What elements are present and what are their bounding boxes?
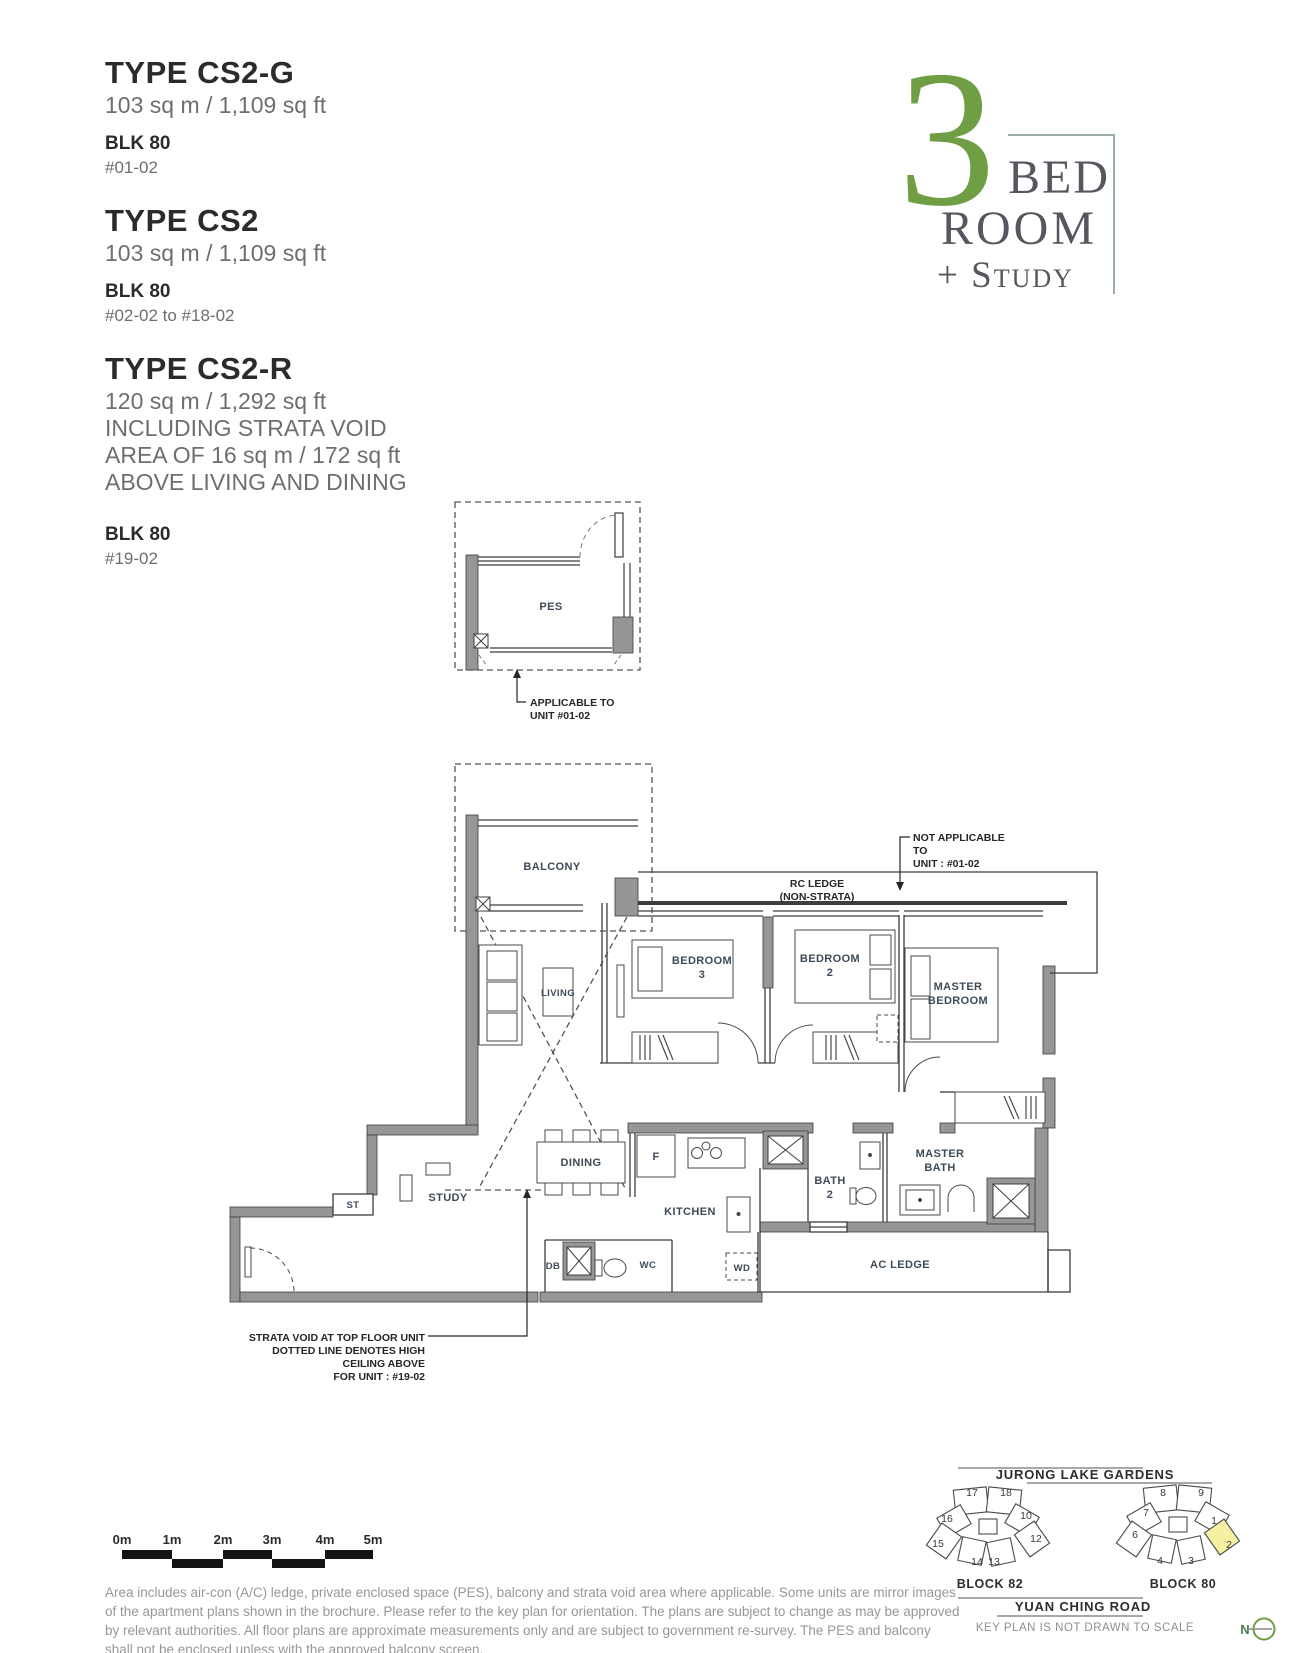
scale-label-0: 0m <box>100 1532 144 1547</box>
label-masterbath-2: BATH <box>924 1162 955 1174</box>
label-living: LIVING <box>541 988 575 999</box>
not-applicable-1: NOT APPLICABLE <box>913 832 1005 844</box>
label-wc: WC <box>640 1260 657 1271</box>
unit-type-3-title: TYPE CS2-R <box>105 351 293 387</box>
pes-room-label: PES <box>539 601 562 613</box>
road-label-top: JURONG LAKE GARDENS <box>996 1467 1174 1482</box>
disclaimer-line-4: shall not be enclosed unless with the ap… <box>105 1640 483 1653</box>
label-bedroom2-2: 2 <box>827 967 834 979</box>
unit-type-3-note-1: INCLUDING STRATA VOID <box>105 415 387 442</box>
unit-type-3-note-3: ABOVE LIVING AND DINING <box>105 469 407 496</box>
bath2-toilet <box>856 1188 876 1205</box>
svg-text:17: 17 <box>966 1487 978 1499</box>
svg-text:13: 13 <box>988 1556 1000 1568</box>
badge-accent-line-v <box>1113 134 1115 294</box>
pes-note-annotation: APPLICABLE TO UNIT #01-02 <box>513 669 614 722</box>
key-plan: JURONG LAKE GARDENS 17 18 16 10 15 12 14… <box>900 1455 1290 1650</box>
main-floorplan: BALCONY LIVING BEDROOM 3 BEDROOM 2 MASTE… <box>225 755 1115 1405</box>
scale-label-4: 4m <box>303 1532 347 1547</box>
entry-door-swing <box>250 1248 294 1292</box>
label-bath2-2: 2 <box>827 1189 834 1201</box>
pes-mini-floorplan: PES APPLICABLE TO UNIT #01-02 <box>430 470 655 735</box>
svg-text:18: 18 <box>1000 1487 1012 1499</box>
scale-label-2: 2m <box>201 1532 245 1547</box>
not-applicable-2: TO <box>913 845 927 857</box>
label-bedroom2-1: BEDROOM <box>800 953 860 965</box>
block-80-label: BLOCK 80 <box>1150 1577 1217 1591</box>
scale-label-5: 5m <box>351 1532 395 1547</box>
label-bedroom3-2: 3 <box>699 969 706 981</box>
svg-text:16: 16 <box>941 1513 953 1525</box>
pes-note-line1: APPLICABLE TO <box>530 697 614 709</box>
svg-text:12: 12 <box>1030 1533 1042 1545</box>
unit-type-1-block: BLK 80 <box>105 133 170 155</box>
key-plan-note: KEY PLAN IS NOT DRAWN TO SCALE <box>976 1622 1194 1634</box>
unit-type-3-block: BLK 80 <box>105 524 170 546</box>
compass-n-label: N <box>1240 1622 1249 1637</box>
svg-text:2: 2 <box>1226 1539 1232 1551</box>
master-toilet <box>948 1185 974 1212</box>
tv-console <box>617 965 624 1017</box>
room-labels: BALCONY LIVING BEDROOM 3 BEDROOM 2 MASTE… <box>347 861 989 1274</box>
study-desk <box>400 1175 412 1201</box>
unit-type-3-area: 120 sq m / 1,292 sq ft <box>105 388 326 415</box>
svg-text:10: 10 <box>1020 1510 1032 1522</box>
scale-label-3: 3m <box>250 1532 294 1547</box>
pes-door-swing <box>580 515 617 557</box>
disclaimer-line-1: Area includes air-con (A/C) ledge, priva… <box>105 1583 956 1602</box>
floorplan-brochure-page: TYPE CS2-G 103 sq m / 1,109 sq ft BLK 80… <box>0 0 1290 1653</box>
label-master-2: BEDROOM <box>928 995 988 1007</box>
pes-gate-swings <box>479 655 621 666</box>
pes-drain-box <box>474 634 488 648</box>
label-db: DB <box>546 1261 561 1272</box>
svg-text:3: 3 <box>1188 1555 1194 1567</box>
disclaimer-line-2: of the apartment plans shown in the broc… <box>105 1602 960 1621</box>
strata-note-3: CEILING ABOVE <box>343 1358 425 1370</box>
label-wd: WD <box>734 1263 751 1274</box>
label-st: ST <box>347 1200 360 1211</box>
svg-text:15: 15 <box>932 1538 944 1550</box>
badge-accent-line-h <box>1008 134 1115 136</box>
unit-type-2-area: 103 sq m / 1,109 sq ft <box>105 240 326 267</box>
label-master-1: MASTER <box>934 981 983 993</box>
badge-word-study: + Study <box>937 254 1074 297</box>
block-80-footprint <box>1116 1485 1239 1564</box>
svg-text:7: 7 <box>1143 1507 1149 1519</box>
road-label-bottom: YUAN CHING ROAD <box>1015 1599 1151 1614</box>
unit-type-2-block: BLK 80 <box>105 281 170 303</box>
strata-note-2: DOTTED LINE DENOTES HIGH <box>272 1345 425 1357</box>
label-study: STUDY <box>428 1192 468 1204</box>
unit-type-2-title: TYPE CS2 <box>105 203 259 239</box>
wc-toilet <box>604 1259 626 1277</box>
block-82-footprint <box>926 1487 1049 1566</box>
unit-type-3-units: #19-02 <box>105 549 158 569</box>
unit-type-1-area: 103 sq m / 1,109 sq ft <box>105 92 326 119</box>
disclaimer-line-3: by relevant authorities. All floor plans… <box>105 1621 931 1640</box>
badge-word-bed: BED <box>1008 150 1110 205</box>
label-balcony: BALCONY <box>523 861 580 873</box>
ac-unit-dashed <box>877 1015 898 1042</box>
label-bedroom3-1: BEDROOM <box>672 955 732 967</box>
label-bath2-1: BATH <box>814 1175 845 1187</box>
block-82-label: BLOCK 82 <box>957 1577 1024 1591</box>
label-masterbath-1: MASTER <box>916 1148 965 1160</box>
svg-text:6: 6 <box>1132 1529 1138 1541</box>
label-ac-ledge: AC LEDGE <box>870 1259 930 1271</box>
svg-text:9: 9 <box>1198 1487 1204 1499</box>
pes-note-line2: UNIT #01-02 <box>530 710 590 722</box>
rc-ledge-label-2: (NON-STRATA) <box>780 891 855 903</box>
svg-text:8: 8 <box>1160 1487 1166 1499</box>
unit-type-3-note-2: AREA OF 16 sq m / 172 sq ft <box>105 442 400 469</box>
unit-type-1-units: #01-02 <box>105 158 158 178</box>
unit-type-2-units: #02-02 to #18-02 <box>105 306 235 326</box>
svg-text:1: 1 <box>1211 1515 1217 1527</box>
rc-ledge-label-1: RC LEDGE <box>790 878 844 890</box>
strata-note-1: STRATA VOID AT TOP FLOOR UNIT <box>249 1332 426 1344</box>
north-compass-icon: N <box>1240 1619 1274 1640</box>
svg-text:14: 14 <box>971 1556 983 1568</box>
scale-label-1: 1m <box>150 1532 194 1547</box>
badge-word-room: ROOM <box>941 201 1097 256</box>
strata-note-4: FOR UNIT : #19-02 <box>333 1371 425 1383</box>
svg-text:4: 4 <box>1157 1555 1163 1567</box>
label-fridge: F <box>652 1151 659 1163</box>
unit-type-1-title: TYPE CS2-G <box>105 55 294 91</box>
pes-windows <box>478 513 630 652</box>
label-kitchen: KITCHEN <box>664 1206 716 1218</box>
label-dining: DINING <box>561 1157 602 1169</box>
not-applicable-3: UNIT : #01-02 <box>913 858 980 870</box>
entry-door-leaf <box>245 1247 251 1277</box>
